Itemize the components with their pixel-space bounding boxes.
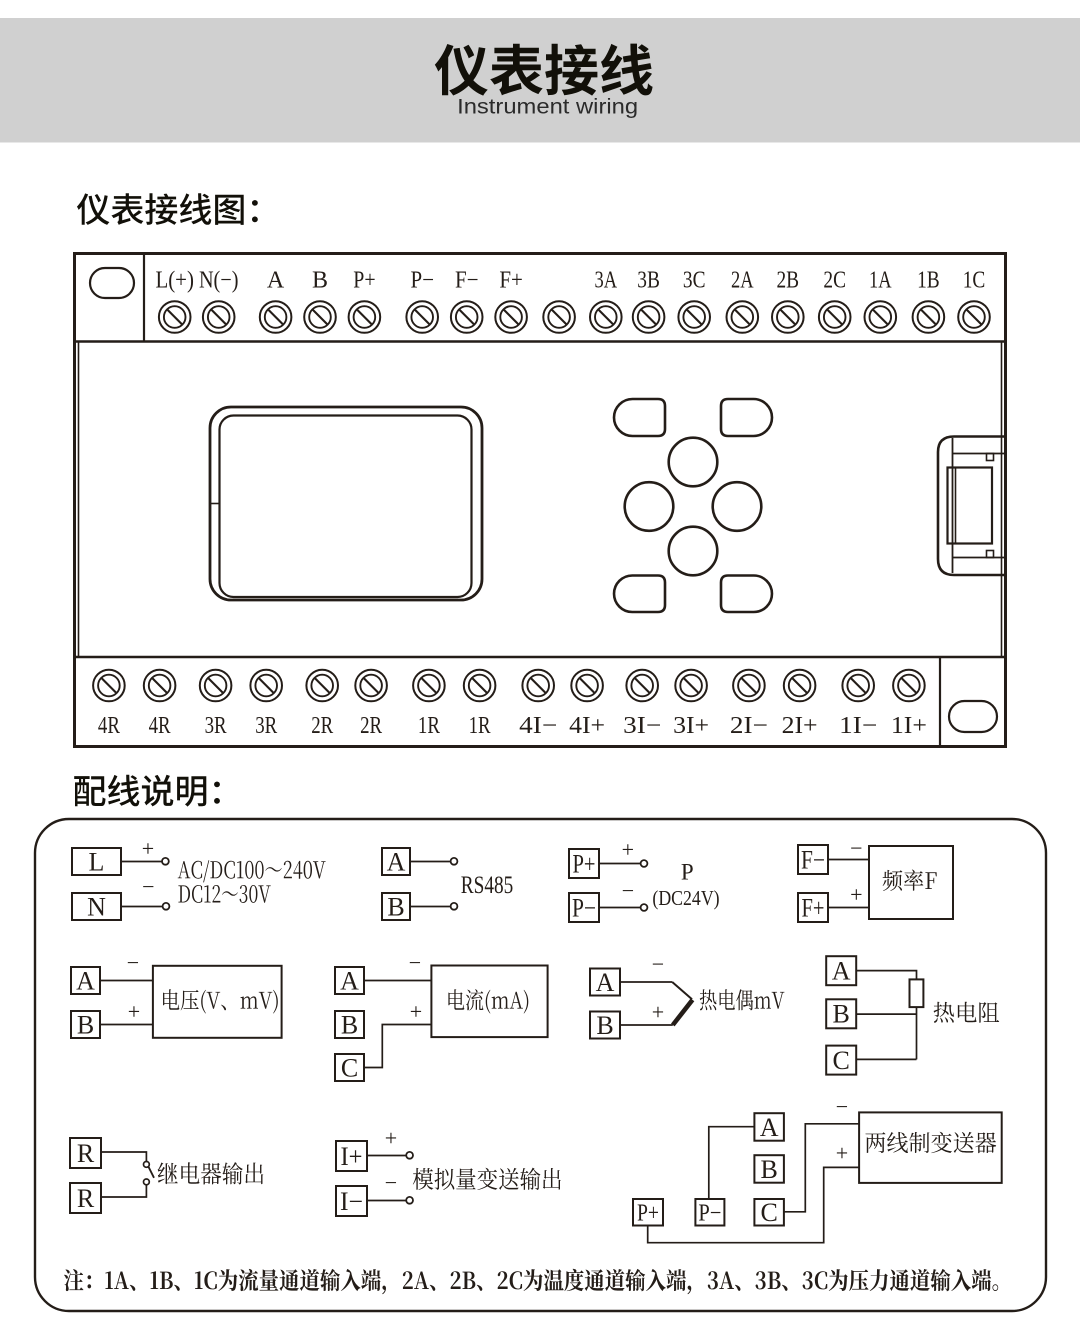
svg-text:A: A [832, 957, 851, 986]
svg-text:1C: 1C [963, 268, 986, 294]
svg-text:1B: 1B [917, 268, 940, 294]
svg-text:2I+: 2I+ [782, 713, 818, 739]
svg-text:−: − [850, 835, 862, 860]
svg-text:1I+: 1I+ [891, 713, 927, 739]
svg-text:+: + [652, 1000, 664, 1025]
svg-text:3C: 3C [683, 268, 706, 294]
svg-text:4R: 4R [98, 713, 120, 739]
svg-text:−: − [622, 878, 634, 903]
svg-text:1I−: 1I− [839, 713, 877, 739]
svg-text:4I−: 4I− [519, 713, 557, 739]
svg-text:R: R [77, 1139, 95, 1168]
svg-text:F−: F− [455, 268, 479, 294]
svg-text:2B: 2B [777, 268, 800, 294]
svg-text:P−: P− [572, 893, 596, 922]
svg-text:C: C [833, 1046, 850, 1075]
svg-text:P+: P+ [353, 268, 375, 294]
svg-text:+: + [142, 836, 154, 861]
svg-text:−: − [142, 874, 154, 899]
svg-text:+: + [385, 1126, 397, 1151]
svg-text:I−: I− [340, 1187, 363, 1216]
svg-text:C: C [760, 1198, 777, 1227]
svg-text:B: B [77, 1010, 94, 1039]
svg-text:F+: F+ [802, 893, 825, 922]
svg-text:−: − [127, 950, 139, 975]
svg-text:2I−: 2I− [730, 713, 768, 739]
svg-text:−: − [409, 950, 421, 975]
svg-text:A: A [76, 966, 95, 995]
svg-text:A: A [340, 966, 359, 995]
svg-text:3R: 3R [255, 713, 277, 739]
svg-text:2A: 2A [731, 268, 754, 294]
svg-text:Instrument wiring: Instrument wiring [457, 95, 638, 119]
svg-text:3B: 3B [637, 268, 660, 294]
svg-text:P−: P− [698, 1200, 721, 1226]
svg-text:3I+: 3I+ [673, 713, 709, 739]
svg-text:A: A [760, 1113, 779, 1142]
svg-text:3R: 3R [205, 713, 227, 739]
svg-text:C: C [341, 1053, 358, 1082]
svg-text:−: − [652, 952, 664, 977]
svg-text:2R: 2R [311, 713, 333, 739]
svg-text:B: B [596, 1011, 613, 1040]
svg-text:4I+: 4I+ [569, 713, 605, 739]
svg-text:R: R [77, 1184, 95, 1213]
svg-text:B: B [312, 268, 328, 294]
svg-text:P: P [681, 859, 694, 884]
svg-text:P−: P− [410, 268, 434, 294]
svg-text:3I−: 3I− [623, 713, 661, 739]
svg-text:B: B [387, 892, 404, 921]
svg-text:I+: I+ [341, 1142, 363, 1171]
svg-text:+: + [836, 1141, 848, 1166]
svg-text:F+: F+ [499, 268, 523, 294]
svg-text:1R: 1R [469, 713, 491, 739]
svg-text:2R: 2R [360, 713, 382, 739]
svg-text:A: A [267, 268, 285, 294]
svg-text:+: + [622, 837, 634, 862]
svg-text:+: + [128, 999, 140, 1024]
svg-text:N(−): N(−) [199, 268, 239, 294]
svg-text:+: + [410, 999, 422, 1024]
svg-text:(DC24V): (DC24V) [652, 886, 719, 910]
svg-text:+: + [850, 882, 862, 907]
svg-text:B: B [833, 1000, 850, 1029]
svg-text:P+: P+ [637, 1200, 659, 1226]
svg-text:L: L [89, 847, 105, 876]
svg-text:RS485: RS485 [461, 872, 514, 899]
svg-text:2C: 2C [823, 268, 846, 294]
svg-text:−: − [836, 1094, 848, 1119]
svg-text:N: N [87, 892, 106, 921]
svg-text:−: − [385, 1170, 397, 1195]
svg-text:B: B [341, 1010, 358, 1039]
svg-text:P+: P+ [573, 849, 596, 878]
svg-text:F−: F− [801, 845, 825, 874]
svg-text:3A: 3A [595, 268, 618, 294]
svg-text:L(+): L(+) [155, 268, 194, 294]
svg-text:A: A [387, 847, 406, 876]
svg-text:A: A [596, 968, 615, 997]
svg-text:4R: 4R [149, 713, 171, 739]
svg-text:B: B [760, 1155, 777, 1184]
svg-text:1A: 1A [869, 268, 892, 294]
svg-text:1R: 1R [418, 713, 440, 739]
